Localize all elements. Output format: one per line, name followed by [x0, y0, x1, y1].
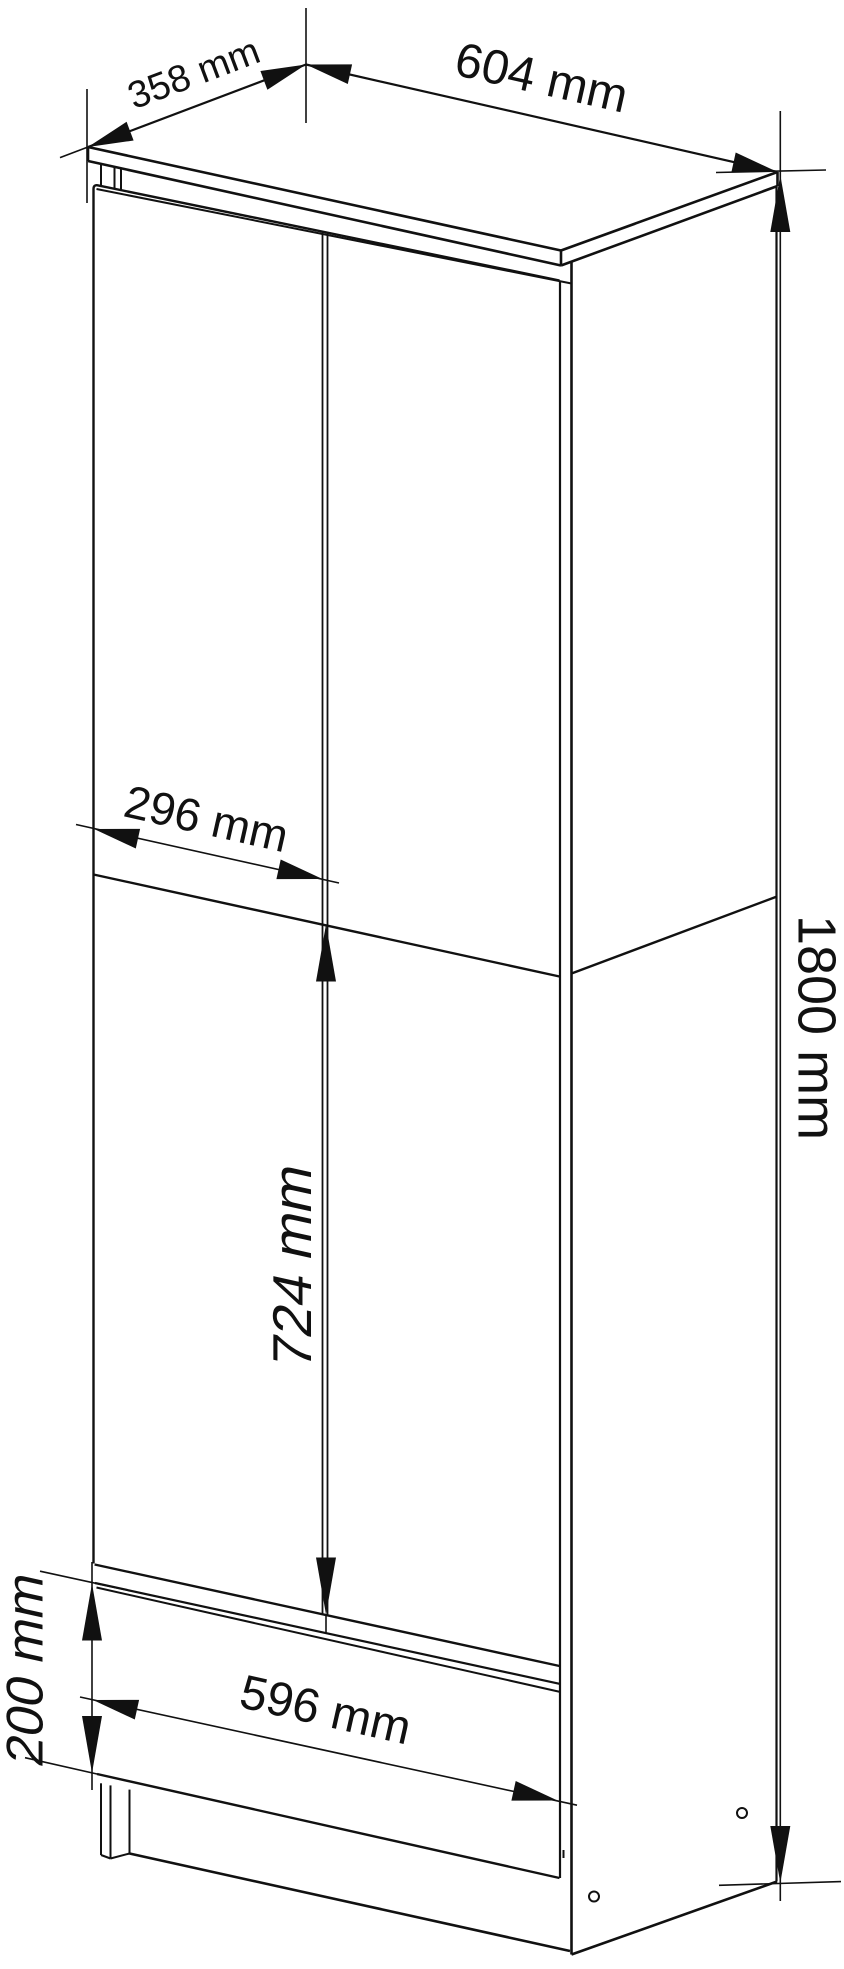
svg-text:1800 mm: 1800 mm: [787, 915, 844, 1140]
svg-text:200 mm: 200 mm: [0, 1567, 54, 1771]
svg-text:724 mm: 724 mm: [261, 1158, 323, 1374]
